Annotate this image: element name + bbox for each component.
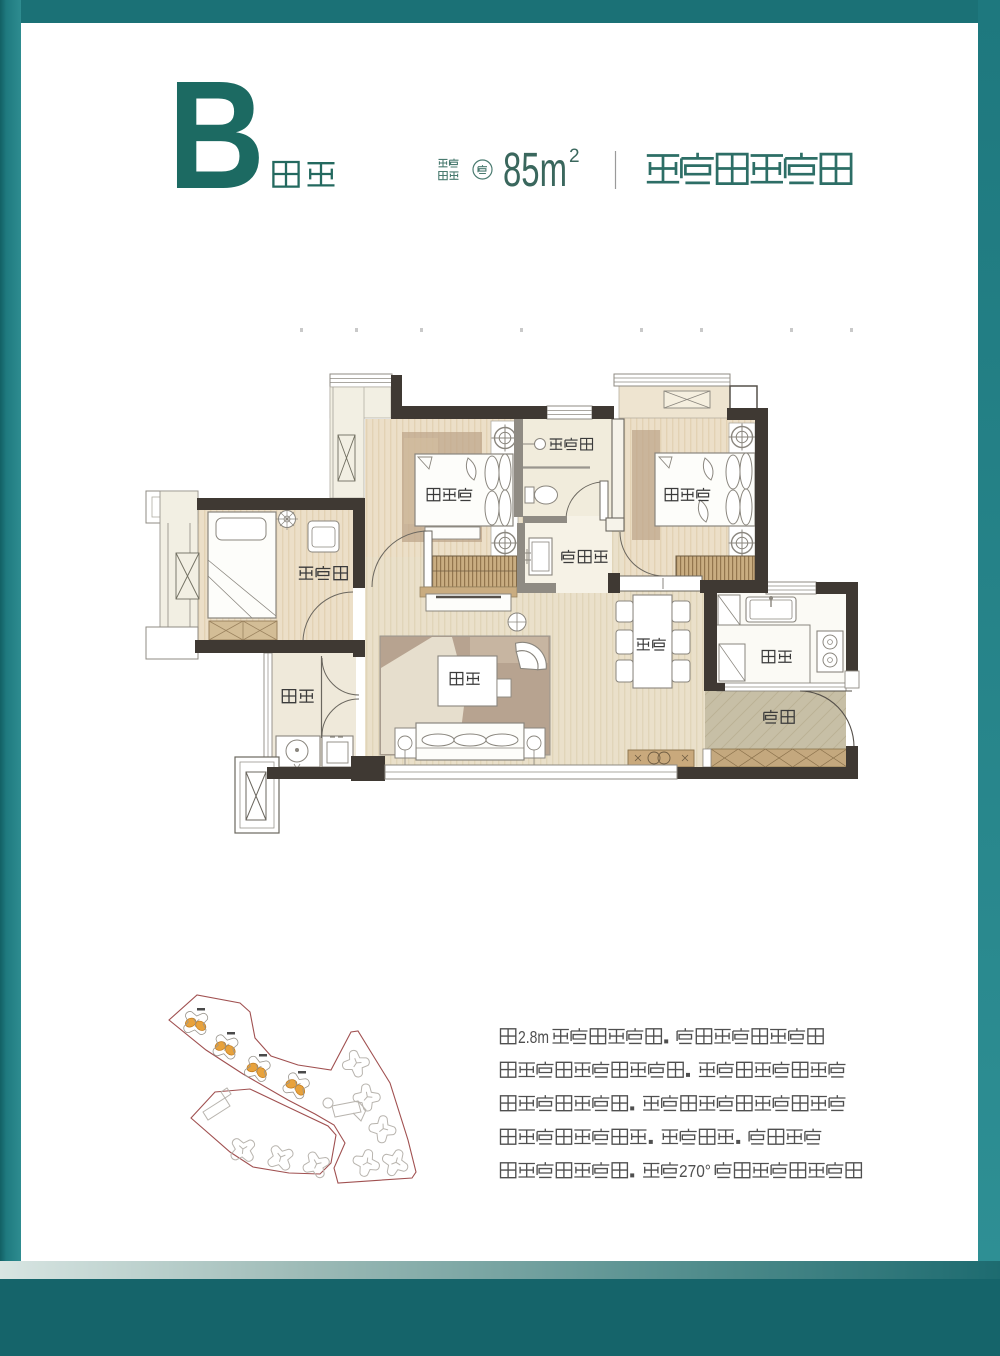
svg-text:85m: 85m	[503, 144, 567, 197]
svg-text:2: 2	[569, 146, 580, 167]
svg-text:270°: 270°	[679, 1161, 711, 1181]
svg-text:2.8m: 2.8m	[518, 1027, 549, 1047]
svg-text:B: B	[168, 49, 265, 221]
